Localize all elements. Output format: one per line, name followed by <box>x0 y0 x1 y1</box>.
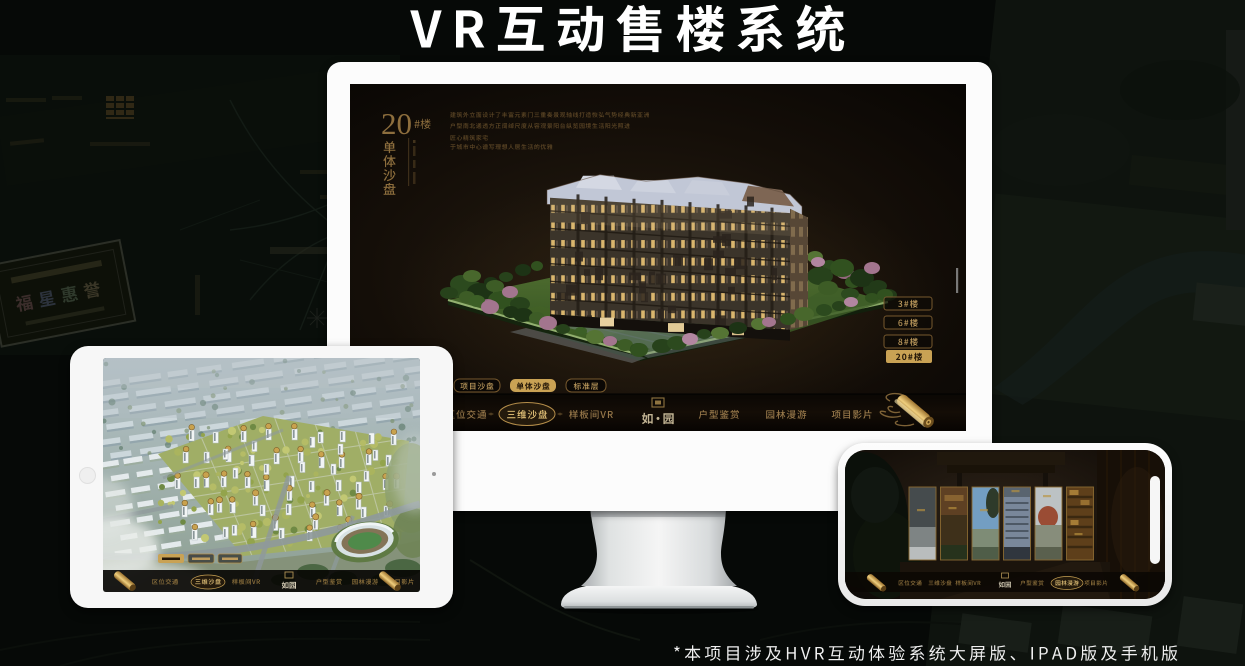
svg-text:20: 20 <box>381 106 412 141</box>
